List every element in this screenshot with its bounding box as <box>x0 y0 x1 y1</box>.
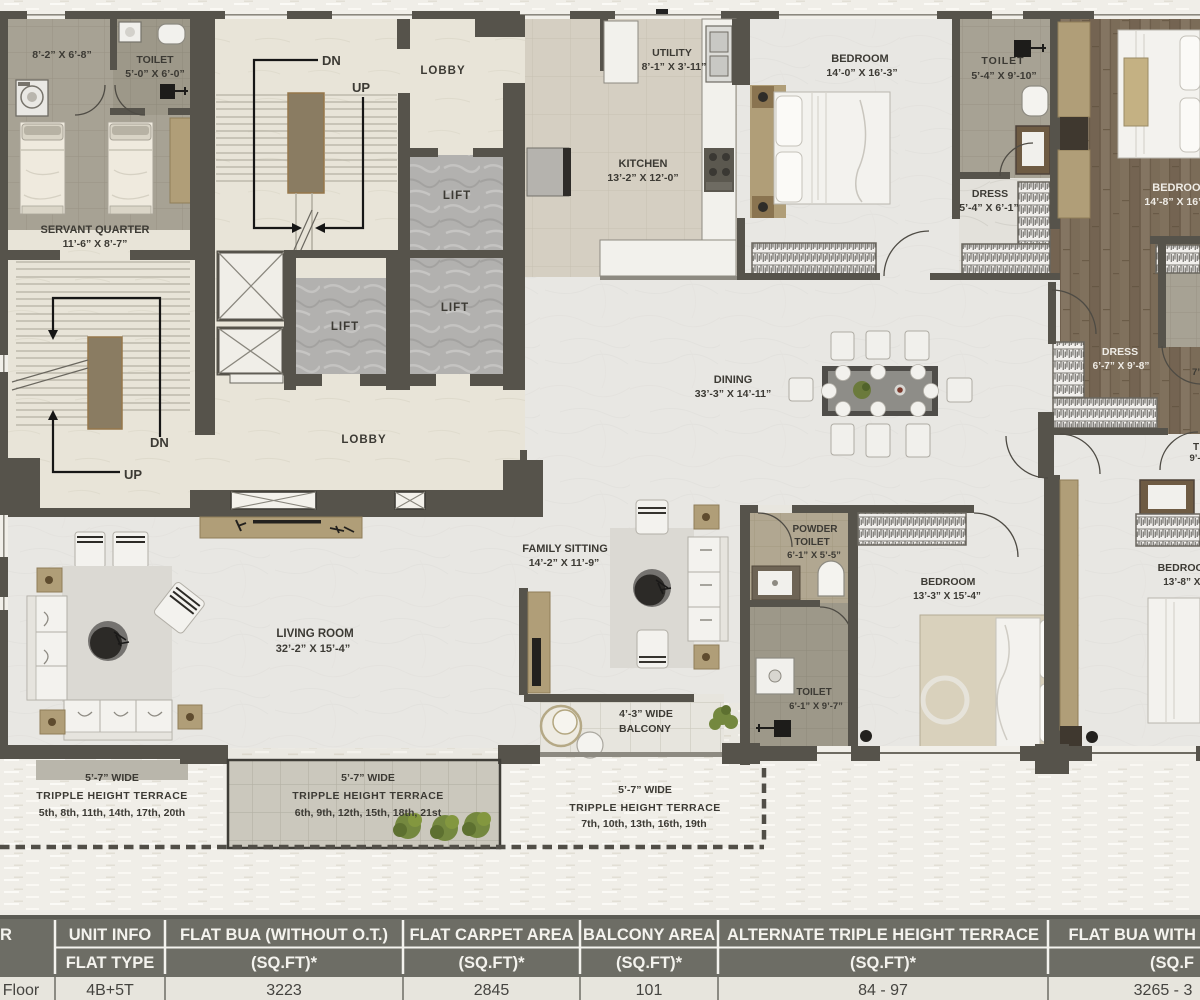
svg-text:T: T <box>1193 442 1199 453</box>
svg-text:6’-1” X 5’-5”: 6’-1” X 5’-5” <box>787 550 841 561</box>
svg-text:TOILET: TOILET <box>981 55 1024 67</box>
svg-text:3265 - 3: 3265 - 3 <box>1134 982 1193 999</box>
svg-text:6’-7” X 9’-8”: 6’-7” X 9’-8” <box>1093 361 1150 372</box>
svg-text:4B+5T: 4B+5T <box>86 982 134 999</box>
svg-text:5th, 8th, 11th, 14th, 17th, 20: 5th, 8th, 11th, 14th, 17th, 20th <box>39 807 185 819</box>
svg-text:LIFT: LIFT <box>443 190 471 202</box>
svg-text:BALCONY: BALCONY <box>619 723 671 735</box>
svg-text:TRIPPLE HEIGHT TERRACE: TRIPPLE HEIGHT TERRACE <box>36 790 188 802</box>
svg-text:5’-4” X 9’-10”: 5’-4” X 9’-10” <box>971 70 1036 82</box>
svg-text:(SQ.FT)*: (SQ.FT)* <box>459 954 526 972</box>
svg-text:14’-0” X 16’-3”: 14’-0” X 16’-3” <box>826 67 897 79</box>
svg-text:FLAT BUA (WITHOUT O.T.): FLAT BUA (WITHOUT O.T.) <box>180 926 388 944</box>
svg-text:5’-7” WIDE: 5’-7” WIDE <box>618 784 672 796</box>
svg-text:TRIPPLE HEIGHT TERRACE: TRIPPLE HEIGHT TERRACE <box>292 790 444 802</box>
svg-text:BEDROOM: BEDROOM <box>1158 562 1200 574</box>
svg-text:TOILET: TOILET <box>136 54 174 66</box>
svg-text:11’-6” X 8’-7”: 11’-6” X 8’-7” <box>63 238 128 250</box>
svg-text:POWDER: POWDER <box>793 524 839 535</box>
svg-text:13’-8” X 1: 13’-8” X 1 <box>1163 577 1200 588</box>
svg-text:8’-2” X 6’-8”: 8’-2” X 6’-8” <box>32 49 92 61</box>
svg-text:(SQ.FT)*: (SQ.FT)* <box>616 954 683 972</box>
svg-text:FLAT CARPET AREA: FLAT CARPET AREA <box>409 926 573 944</box>
svg-text:LIFT: LIFT <box>441 302 469 314</box>
svg-text:(SQ.F: (SQ.F <box>1150 954 1194 972</box>
svg-text:(SQ.FT)*: (SQ.FT)* <box>850 954 917 972</box>
svg-text:84 - 97: 84 - 97 <box>858 982 908 999</box>
svg-text:FLAT BUA WITH S: FLAT BUA WITH S <box>1069 926 1200 944</box>
svg-text:BEDROOM: BEDROOM <box>831 53 888 65</box>
svg-text:UNIT INFO: UNIT INFO <box>69 926 152 944</box>
svg-text:SERVANT QUARTER: SERVANT QUARTER <box>41 224 150 236</box>
svg-text:(SQ.FT)*: (SQ.FT)* <box>251 954 318 972</box>
svg-text:13’-3” X 15’-4”: 13’-3” X 15’-4” <box>913 591 981 602</box>
svg-text:7th, 10th, 13th, 16th, 19th: 7th, 10th, 13th, 16th, 19th <box>581 818 706 830</box>
svg-text:8’-1” X 3’-11”: 8’-1” X 3’-11” <box>642 61 707 73</box>
svg-text:5’-7” WIDE: 5’-7” WIDE <box>341 772 395 784</box>
svg-text:BEDROOM: BEDROOM <box>921 576 976 588</box>
svg-text:DRESS: DRESS <box>972 188 1008 200</box>
svg-text:FLAT TYPE: FLAT TYPE <box>66 954 155 972</box>
svg-text:33’-3” X 14’-11”: 33’-3” X 14’-11” <box>695 388 771 400</box>
svg-text:13’-2” X 12’-0”: 13’-2” X 12’-0” <box>607 172 678 184</box>
svg-text:9’-: 9’- <box>1189 453 1200 464</box>
svg-text:4’-3” WIDE: 4’-3” WIDE <box>619 708 673 720</box>
svg-text:5’-0” X 6’-0”: 5’-0” X 6’-0” <box>125 68 185 80</box>
svg-text:DN: DN <box>150 435 169 450</box>
svg-text:LIVING ROOM: LIVING ROOM <box>276 628 353 640</box>
svg-text:DINING: DINING <box>714 374 753 386</box>
svg-text:7’: 7’ <box>1192 367 1200 378</box>
svg-text:TOILET: TOILET <box>794 537 829 548</box>
svg-text:UP: UP <box>124 467 142 482</box>
svg-text:LIFT: LIFT <box>331 321 359 333</box>
svg-text:Floor: Floor <box>3 982 40 999</box>
svg-text:KITCHEN: KITCHEN <box>619 158 668 170</box>
svg-text:6th, 9th, 12th, 15th, 18th, 21: 6th, 9th, 12th, 15th, 18th, 21st <box>295 807 442 819</box>
svg-text:32’-2” X 15’-4”: 32’-2” X 15’-4” <box>276 643 351 655</box>
svg-text:LOBBY: LOBBY <box>341 434 386 446</box>
svg-text:UTILITY: UTILITY <box>652 47 692 59</box>
svg-text:R: R <box>0 926 12 944</box>
svg-text:6’-1” X 9’-7”: 6’-1” X 9’-7” <box>789 701 843 712</box>
svg-text:BEDROOM: BEDROOM <box>1152 182 1200 194</box>
svg-text:FAMILY SITTING: FAMILY SITTING <box>522 543 608 555</box>
svg-text:UP: UP <box>352 80 370 95</box>
svg-text:ALTERNATE TRIPLE HEIGHT TERRAC: ALTERNATE TRIPLE HEIGHT TERRACE <box>727 926 1039 944</box>
svg-text:5’-7” WIDE: 5’-7” WIDE <box>85 772 139 784</box>
svg-text:LOBBY: LOBBY <box>420 65 465 77</box>
svg-text:DRESS: DRESS <box>1102 346 1138 358</box>
svg-text:TOILET: TOILET <box>796 687 831 698</box>
svg-text:TRIPPLE HEIGHT TERRACE: TRIPPLE HEIGHT TERRACE <box>569 802 721 814</box>
svg-text:2845: 2845 <box>474 982 510 999</box>
svg-text:101: 101 <box>636 982 663 999</box>
svg-text:14’-8” X 16’-3”: 14’-8” X 16’-3” <box>1144 196 1200 208</box>
svg-text:BALCONY AREA: BALCONY AREA <box>583 926 715 944</box>
svg-text:3223: 3223 <box>266 982 302 999</box>
svg-text:DN: DN <box>322 53 341 68</box>
svg-text:14’-2” X 11’-9”: 14’-2” X 11’-9” <box>529 557 600 569</box>
svg-text:5’-4” X 6’-1”: 5’-4” X 6’-1” <box>959 202 1019 214</box>
